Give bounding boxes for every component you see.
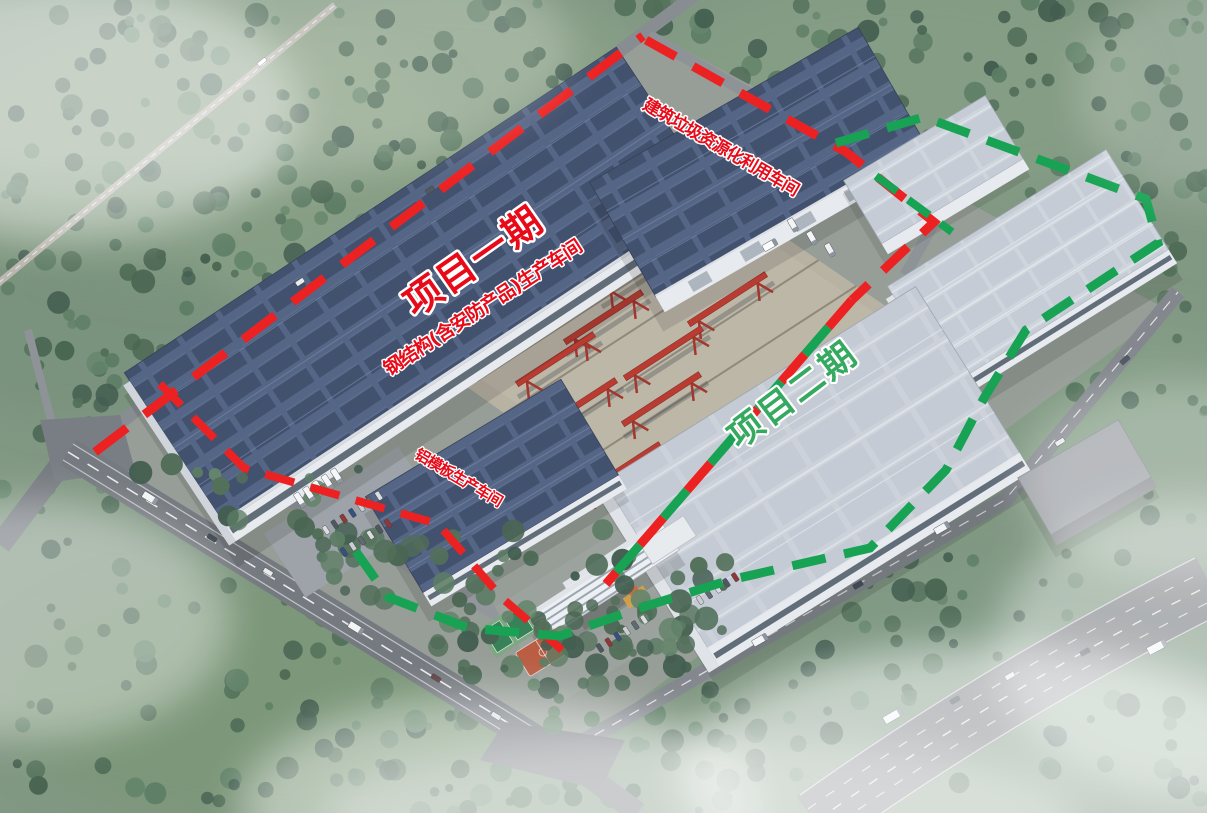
haze-tint	[0, 0, 1207, 813]
scene-canvas: 项目一期 钢结构(含安防产品)生产车间 建筑垃圾资源化利用车间 项目二期 铝模板…	[0, 0, 1207, 813]
factory-campus-aerial-rendering: 项目一期 钢结构(含安防产品)生产车间 建筑垃圾资源化利用车间 项目二期 铝模板…	[0, 0, 1207, 813]
